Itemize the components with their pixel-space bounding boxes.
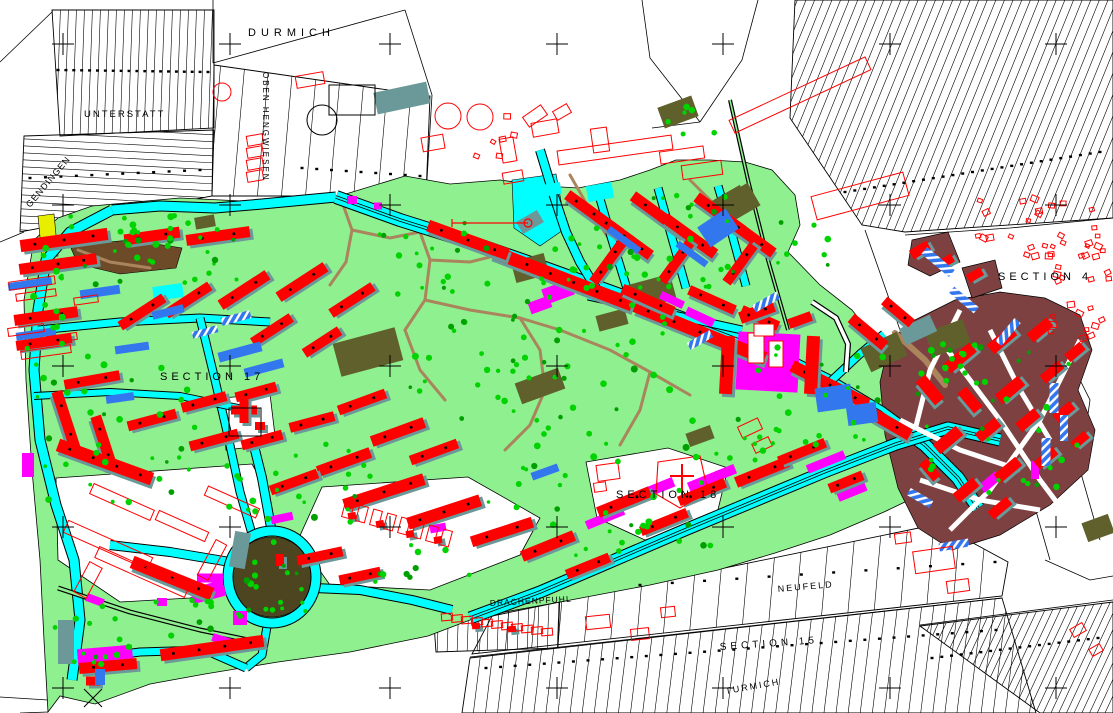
entrance-dot [92, 234, 95, 237]
tree-icon [275, 488, 279, 492]
small-house-outline-body [1024, 252, 1030, 258]
tree-icon [811, 223, 816, 228]
parcel-number-tick [951, 174, 954, 176]
blue-building-body [95, 669, 105, 685]
magenta-building-body [22, 453, 34, 477]
parcel-number-tick [419, 175, 422, 177]
tree-icon [853, 434, 858, 439]
parcel-number-tick [57, 69, 60, 71]
tree-icon [974, 380, 979, 385]
tree-icon [423, 379, 427, 383]
parcel-number-tick [330, 169, 333, 171]
small-house-outline [1048, 252, 1054, 257]
tree-icon [343, 485, 349, 491]
parcel-number-tick [961, 563, 964, 565]
outline-building [894, 532, 911, 544]
tree-icon [634, 254, 641, 261]
entrance-dot [56, 339, 59, 342]
tree-icon [484, 367, 490, 373]
parcel-number-tick [1067, 640, 1070, 642]
tree-icon [572, 267, 578, 273]
tree-icon [699, 480, 704, 485]
teal-block-body [58, 620, 74, 664]
tree-icon [299, 587, 304, 592]
outline-building-body [811, 172, 909, 220]
grid-cross-icon [219, 33, 241, 55]
tree-icon [450, 289, 455, 294]
parcel-number-tick [96, 69, 99, 71]
tree-icon [238, 476, 243, 481]
parcel-number-tick [994, 561, 997, 563]
tree-icon [126, 499, 132, 505]
tree-icon [541, 281, 546, 286]
grid-cross-icon [1045, 677, 1067, 699]
tree-icon [484, 281, 490, 287]
tree-icon [117, 637, 123, 643]
small-house-outline [1085, 240, 1093, 247]
small-house-outline [1057, 232, 1064, 239]
parcel-number-tick [1010, 165, 1013, 167]
entrance-dot [223, 645, 226, 648]
tree-icon [487, 500, 491, 504]
small-house-outline-body [1088, 306, 1094, 311]
tree-icon [736, 417, 741, 422]
tree-icon [628, 249, 634, 255]
parcel-number-tick [971, 171, 974, 173]
parcel-number-tick [207, 71, 210, 73]
tree-icon [539, 276, 544, 281]
parking-strip [1060, 415, 1068, 441]
map-label-section-18: SECTION 18 [616, 489, 720, 501]
parcel-number-tick [932, 177, 935, 179]
tree-icon [452, 329, 457, 334]
tree-icon [373, 580, 377, 584]
parcel-number-tick [64, 69, 67, 71]
tree-icon [986, 437, 990, 441]
outline-building [590, 127, 609, 153]
grid-cross-icon [219, 677, 241, 699]
parcel-number-tick [965, 631, 968, 633]
tree-icon [681, 132, 686, 137]
parcel-number-tick [1048, 643, 1051, 645]
small-house-outline-body [1067, 301, 1075, 308]
parcel-boundary [405, 10, 432, 95]
tree-icon [455, 248, 460, 253]
tree-icon [594, 226, 600, 232]
parcel-number-tick [981, 169, 984, 171]
tree-icon [689, 417, 696, 424]
entrance-dot [31, 266, 34, 269]
tree-icon [483, 245, 489, 251]
small-house-outline-body [1060, 240, 1066, 245]
tree-icon [193, 602, 199, 608]
tree-icon [718, 267, 723, 272]
entrance-dot [249, 641, 252, 644]
tree-icon [623, 352, 628, 357]
small-house-outline-body [986, 234, 994, 241]
entrance-dot [77, 381, 80, 384]
grid-cross-icon [379, 33, 401, 55]
tree-icon [771, 441, 775, 445]
tree-icon [152, 241, 159, 248]
tree-icon [558, 415, 563, 420]
tree-icon [501, 398, 508, 405]
parcel-number-tick [191, 71, 194, 73]
tree-icon [102, 412, 106, 416]
tree-icon [635, 529, 641, 535]
parcel-number-tick [1028, 645, 1031, 647]
tree-icon [475, 382, 480, 387]
map-label-gendingen: GENDINGEN [24, 154, 72, 209]
parcel-number-tick [735, 578, 738, 580]
tree-icon [87, 409, 93, 415]
tree-icon [46, 435, 52, 441]
tree-icon [542, 360, 547, 365]
parcel-boundary [1045, 560, 1113, 580]
small-house-outline-body [1026, 219, 1031, 223]
tree-icon [603, 510, 608, 515]
tree-icon [30, 293, 37, 300]
tree-icon [189, 598, 194, 603]
tree-icon [562, 376, 567, 381]
tree-icon [1074, 442, 1079, 447]
outline-building-body [421, 134, 445, 152]
small-house-outline-body [1106, 276, 1112, 281]
tree-icon [415, 252, 419, 256]
tree-icon [682, 110, 686, 114]
tree-icon [792, 240, 798, 246]
outline-building-body [913, 546, 956, 573]
parcel-number-tick [1079, 154, 1082, 156]
tree-icon [813, 441, 819, 447]
small-house-outline [1060, 240, 1066, 245]
tree-icon [45, 496, 52, 503]
tree-icon [1053, 484, 1059, 490]
tree-icon [212, 257, 218, 263]
entrance-dot [330, 552, 333, 555]
tree-icon [615, 459, 621, 465]
tree-icon [207, 626, 214, 633]
tree-icon [177, 455, 181, 459]
parcel-number-tick [897, 567, 900, 569]
parcel-number-tick [951, 632, 954, 634]
tree-icon [156, 476, 162, 482]
tree-icon [445, 274, 451, 280]
tree-icon [666, 284, 671, 289]
cad-map-viewport[interactable]: DURMICHUNTERSTATTOBEN HENGWIESENGENDINGE… [0, 0, 1113, 713]
small-house-outline [1055, 264, 1061, 269]
parcel-number-tick [703, 651, 706, 653]
tree-icon [510, 369, 515, 374]
parcel-number-tick [151, 70, 154, 72]
outline-building [553, 104, 572, 121]
tree-icon [662, 321, 667, 326]
outline-building-body [499, 137, 517, 163]
entrance-dot [369, 572, 372, 575]
tree-icon [743, 436, 747, 440]
tree-icon [179, 446, 185, 452]
tree-icon [246, 607, 251, 612]
tree-icon [516, 481, 522, 487]
tree-icon [774, 353, 778, 357]
black-outline-building [329, 85, 375, 115]
tree-icon [53, 268, 60, 275]
tree-icon [568, 235, 574, 241]
tree-icon [69, 224, 74, 229]
tree-icon [114, 652, 121, 659]
tree-icon [417, 262, 423, 268]
tree-icon [252, 508, 258, 514]
small-house-outline [490, 139, 496, 144]
parcel-number-tick [844, 191, 847, 193]
parcel-number-tick [1018, 646, 1021, 648]
tree-icon [707, 543, 713, 549]
outline-circle [213, 83, 231, 101]
tree-icon [442, 286, 446, 290]
small-house-outline [975, 233, 980, 238]
parcel-number-tick [72, 69, 75, 71]
parcel-number-tick [1038, 644, 1041, 646]
map-label-durmich: DURMICH [248, 27, 335, 39]
tree-icon [273, 471, 279, 477]
tree-icon [711, 209, 717, 215]
small-house-outline-body [1057, 232, 1064, 239]
tree-icon [63, 462, 69, 468]
outline-building-body [946, 579, 969, 594]
red-building-body [255, 422, 265, 430]
tree-icon [380, 571, 387, 578]
tree-icon [1027, 351, 1031, 355]
outline-circle [435, 103, 461, 129]
entrance-dot [63, 239, 66, 242]
parcel-number-tick [315, 168, 318, 170]
parcel-number-tick [936, 633, 939, 635]
entrance-dot [172, 652, 175, 655]
red-building [240, 397, 252, 426]
parcel-number-tick [995, 629, 998, 631]
tree-icon [101, 361, 108, 368]
tree-icon [942, 365, 948, 371]
small-house-outline [1028, 244, 1035, 250]
parcel-number-tick [135, 70, 138, 72]
tree-icon [409, 385, 413, 389]
tree-icon [303, 609, 307, 613]
small-house-outline-body [1048, 252, 1054, 257]
tree-icon [118, 279, 123, 284]
tree-icon [441, 279, 446, 284]
tree-icon [168, 633, 174, 639]
outline-building [913, 546, 956, 573]
red-building-body [472, 623, 480, 630]
strip-field-border [920, 602, 1113, 713]
tree-icon [426, 355, 432, 361]
tree-icon [584, 285, 590, 291]
magenta-building [736, 331, 801, 392]
tree-icon [846, 386, 850, 390]
tree-icon [185, 220, 191, 226]
parcel-number-tick [942, 175, 945, 177]
tree-icon [442, 547, 448, 553]
parcel-number-tick [1069, 155, 1072, 157]
small-house-outline [1024, 252, 1030, 258]
small-house-outline [1088, 306, 1094, 311]
parking-strip-body [1060, 415, 1068, 441]
outline-building [1070, 623, 1087, 638]
small-house-outline-body [490, 139, 496, 144]
tree-icon [727, 455, 733, 461]
tree-icon [1036, 428, 1041, 433]
parcel-number-tick [404, 174, 407, 176]
tree-icon [98, 661, 104, 667]
tree-icon [947, 348, 952, 353]
tree-icon [756, 368, 762, 374]
tree-icon [600, 380, 607, 387]
tree-icon [826, 263, 830, 267]
parcel-number-tick [1049, 158, 1052, 160]
tree-icon [197, 619, 203, 625]
tree-icon [208, 603, 214, 609]
strip-field-border [790, 0, 1113, 232]
tree-icon [169, 489, 175, 495]
parcel-number-tick [929, 565, 932, 567]
tree-icon [777, 428, 782, 433]
tree-icon [570, 405, 576, 411]
tree-icon [784, 251, 790, 257]
tree-icon [685, 522, 691, 528]
parcel-number-tick [703, 580, 706, 582]
entrance-dot [82, 259, 85, 262]
tree-icon [412, 353, 419, 360]
entrance-dot [348, 577, 351, 580]
olive-grove-body [1081, 514, 1113, 542]
tree-icon [1021, 478, 1026, 483]
tree-icon [1043, 404, 1050, 411]
tree-icon [552, 246, 558, 252]
tree-icon [916, 392, 920, 396]
tree-icon [417, 388, 423, 394]
tree-icon [323, 442, 328, 447]
map-label-section-17: SECTION 17 [160, 371, 264, 383]
olive-grove [1081, 514, 1113, 542]
tree-icon [925, 425, 929, 429]
parcel-number-tick [991, 168, 994, 170]
parking-strip [1050, 383, 1059, 413]
white-building [754, 324, 774, 336]
parcel-number-tick [183, 170, 186, 172]
tree-icon [584, 265, 590, 271]
teal-block [373, 82, 430, 115]
parcel-number-tick [980, 630, 983, 632]
small-house-outline-body [1087, 332, 1095, 339]
map-label-turmich: TURMICH [725, 676, 781, 695]
tree-icon [404, 571, 410, 577]
tree-icon [300, 601, 304, 605]
grid-cross-icon [546, 677, 568, 699]
tree-icon [776, 261, 780, 265]
tree-icon [607, 264, 613, 270]
parcel-number-tick [128, 70, 131, 72]
tree-icon [280, 606, 284, 610]
parcel-number-tick [159, 70, 162, 72]
entrance-dot [307, 557, 310, 560]
tree-icon [943, 378, 949, 384]
tree-icon [700, 277, 705, 282]
tree-icon [83, 264, 87, 268]
tree-icon [184, 387, 191, 394]
tree-icon [81, 388, 87, 394]
tree-icon [231, 238, 235, 242]
small-house-outline-body [504, 114, 511, 120]
parcel-number-tick [514, 665, 517, 667]
tree-icon [165, 460, 169, 464]
tree-icon [42, 245, 49, 252]
tree-icon [582, 329, 586, 333]
tree-icon [270, 607, 276, 613]
parcel-number-tick [152, 171, 155, 173]
parcel-number-tick [883, 185, 886, 187]
tree-icon [674, 193, 679, 198]
small-house-outline [1092, 253, 1100, 260]
small-house-outline-body [1008, 234, 1014, 239]
tree-icon [645, 518, 652, 525]
tree-icon [875, 397, 881, 403]
tree-icon [1004, 396, 1010, 402]
parcel-number-tick [499, 666, 502, 668]
tree-icon [367, 474, 372, 479]
parcel-number-tick [671, 582, 674, 584]
tree-icon [608, 529, 612, 533]
tree-icon [226, 504, 232, 510]
tree-icon [294, 454, 298, 458]
tree-icon [25, 346, 30, 351]
tree-icon [1017, 359, 1021, 363]
parcel-number-tick [912, 180, 915, 182]
tree-icon [198, 235, 202, 239]
tree-icon [311, 514, 318, 521]
parcel-number-tick [1000, 166, 1003, 168]
small-house-outline-body [1104, 269, 1111, 275]
tree-icon [461, 319, 467, 325]
tree-icon [522, 355, 528, 361]
tree-icon [683, 444, 690, 451]
tree-icon [541, 431, 547, 437]
entrance-dot [29, 342, 32, 345]
tree-icon [918, 370, 924, 376]
small-house-outline [986, 234, 994, 241]
map-label-section-4: SECTION 4 [998, 271, 1092, 283]
tree-icon [135, 237, 141, 243]
small-house-outline-body [510, 132, 517, 138]
tree-icon [928, 466, 934, 472]
white-building-body [748, 333, 764, 363]
parcel-number-tick [1030, 162, 1033, 164]
magenta-building-body [736, 331, 801, 392]
tree-icon [524, 467, 528, 471]
outline-building-body [553, 104, 572, 121]
parcel-number-tick [120, 70, 123, 72]
grid-cross-icon [379, 677, 401, 699]
grid-cross-icon [879, 677, 901, 699]
small-house-outline [1042, 243, 1048, 248]
tree-icon [779, 220, 784, 225]
entrance-dot [57, 263, 60, 266]
small-house-outline-body [1095, 234, 1100, 238]
parcel-number-tick [659, 654, 662, 656]
tree-icon [777, 393, 783, 399]
magenta-building-body [347, 196, 357, 204]
tree-icon [534, 443, 541, 450]
small-house-outline [1067, 301, 1075, 308]
